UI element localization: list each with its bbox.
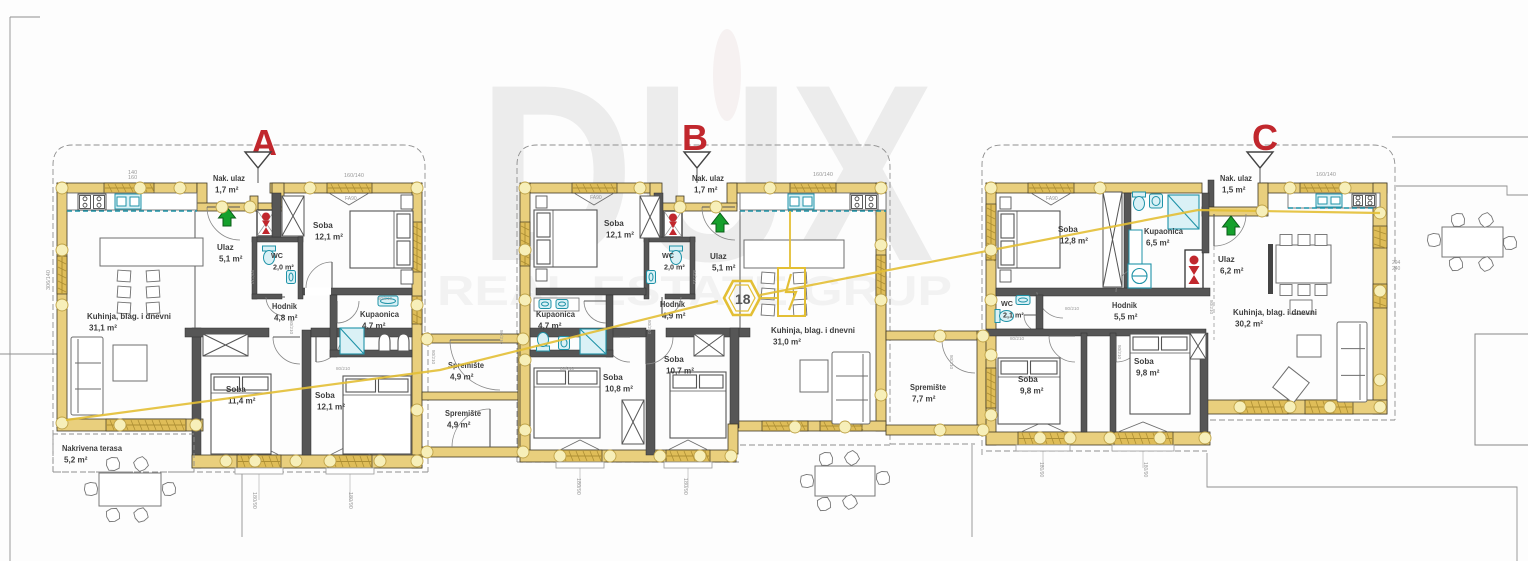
svg-text:160/140: 160/140 bbox=[813, 172, 833, 178]
svg-text:FA90: FA90 bbox=[345, 196, 357, 202]
svg-text:Soba: Soba bbox=[1134, 357, 1154, 366]
svg-text:Nak. ulaz: Nak. ulaz bbox=[1220, 174, 1252, 183]
svg-text:Nakrivena terasa: Nakrivena terasa bbox=[62, 444, 122, 453]
svg-text:1,7 m²: 1,7 m² bbox=[694, 186, 718, 195]
svg-text:80/210: 80/210 bbox=[692, 270, 697, 284]
svg-text:Soba: Soba bbox=[1018, 375, 1038, 384]
svg-text:180/90: 180/90 bbox=[682, 478, 688, 495]
svg-text:Kuhinja, blag. i dnevni: Kuhinja, blag. i dnevni bbox=[1233, 308, 1317, 317]
svg-text:1,5 m²: 1,5 m² bbox=[1222, 186, 1246, 195]
svg-text:1,7 m²: 1,7 m² bbox=[215, 186, 239, 195]
svg-text:2,0 m²: 2,0 m² bbox=[664, 263, 685, 272]
svg-text:4,7 m²: 4,7 m² bbox=[362, 322, 386, 331]
svg-text:5,2 m²: 5,2 m² bbox=[64, 456, 88, 465]
svg-text:80/210: 80/210 bbox=[560, 366, 574, 371]
svg-text:WC: WC bbox=[1001, 299, 1013, 308]
svg-text:12,8 m²: 12,8 m² bbox=[1060, 237, 1088, 246]
svg-text:5,5 m²: 5,5 m² bbox=[1114, 313, 1138, 322]
svg-text:4,7 m²: 4,7 m² bbox=[538, 322, 562, 331]
svg-text:Kupaonica: Kupaonica bbox=[1144, 227, 1183, 236]
svg-text:80/210: 80/210 bbox=[1065, 306, 1079, 311]
svg-text:306/140: 306/140 bbox=[46, 270, 52, 290]
svg-text:Kupaonica: Kupaonica bbox=[536, 310, 575, 319]
svg-text:Nak. ulaz: Nak. ulaz bbox=[213, 174, 245, 183]
svg-text:30,2 m²: 30,2 m² bbox=[1235, 320, 1263, 329]
svg-text:12,1 m²: 12,1 m² bbox=[606, 231, 634, 240]
svg-text:Hodnik: Hodnik bbox=[660, 300, 685, 309]
svg-text:80/210: 80/210 bbox=[250, 270, 255, 284]
svg-text:6,5 m²: 6,5 m² bbox=[1146, 239, 1170, 248]
svg-text:80/210: 80/210 bbox=[431, 350, 436, 364]
svg-text:Spremište: Spremište bbox=[448, 361, 484, 370]
svg-text:Kuhinja, blag. i dnevni: Kuhinja, blag. i dnevni bbox=[87, 312, 171, 321]
svg-text:Ulaz: Ulaz bbox=[1218, 255, 1235, 264]
svg-text:2,1 m²: 2,1 m² bbox=[1003, 311, 1024, 320]
svg-text:80/210: 80/210 bbox=[1117, 345, 1122, 359]
svg-text:31,0 m²: 31,0 m² bbox=[773, 338, 801, 347]
svg-text:160/140: 160/140 bbox=[344, 173, 364, 179]
svg-text:Soba: Soba bbox=[313, 221, 333, 230]
svg-text:Hodnik: Hodnik bbox=[272, 302, 297, 311]
svg-text:Soba: Soba bbox=[1058, 225, 1078, 234]
svg-text:WC: WC bbox=[271, 251, 283, 260]
svg-text:240: 240 bbox=[1392, 266, 1401, 272]
svg-text:80/210: 80/210 bbox=[289, 320, 294, 334]
svg-text:31,1 m²: 31,1 m² bbox=[89, 324, 117, 333]
svg-text:80/210: 80/210 bbox=[378, 296, 392, 301]
svg-text:10,8 m²: 10,8 m² bbox=[605, 385, 633, 394]
svg-text:80/210: 80/210 bbox=[949, 355, 954, 369]
svg-text:9,8 m²: 9,8 m² bbox=[1020, 387, 1044, 396]
svg-text:5,1 m²: 5,1 m² bbox=[219, 255, 243, 264]
svg-text:12,1 m²: 12,1 m² bbox=[315, 233, 343, 242]
svg-text:2,0 m²: 2,0 m² bbox=[273, 263, 294, 272]
svg-text:10,7 m²: 10,7 m² bbox=[666, 367, 694, 376]
svg-text:80/210: 80/210 bbox=[647, 320, 652, 334]
svg-text:Spremište: Spremište bbox=[910, 383, 946, 392]
svg-text:WC: WC bbox=[662, 251, 674, 260]
svg-text:140: 140 bbox=[128, 170, 137, 176]
svg-text:7,7 m²: 7,7 m² bbox=[912, 395, 936, 404]
svg-text:80/210: 80/210 bbox=[499, 330, 504, 344]
svg-text:Ulaz: Ulaz bbox=[217, 243, 234, 252]
svg-text:18: 18 bbox=[735, 291, 751, 307]
svg-text:Hodnik: Hodnik bbox=[1112, 301, 1137, 310]
svg-text:Nak. ulaz: Nak. ulaz bbox=[692, 174, 724, 183]
svg-text:Soba: Soba bbox=[226, 385, 246, 394]
svg-text:Soba: Soba bbox=[315, 391, 335, 400]
svg-text:180/90: 180/90 bbox=[251, 492, 257, 509]
svg-text:Ulaz: Ulaz bbox=[710, 252, 727, 261]
svg-text:Soba: Soba bbox=[664, 355, 684, 364]
svg-text:5,1 m²: 5,1 m² bbox=[712, 264, 736, 273]
svg-text:Soba: Soba bbox=[603, 373, 623, 382]
svg-text:FA90: FA90 bbox=[1046, 196, 1058, 202]
svg-text:9,8 m²: 9,8 m² bbox=[1136, 369, 1160, 378]
svg-text:Kuhinja, blag. i dnevni: Kuhinja, blag. i dnevni bbox=[771, 326, 855, 335]
svg-text:12,1 m²: 12,1 m² bbox=[317, 403, 345, 412]
svg-text:160/140: 160/140 bbox=[1316, 172, 1336, 178]
svg-text:6,2 m²: 6,2 m² bbox=[1220, 267, 1244, 276]
svg-text:Soba: Soba bbox=[604, 219, 624, 228]
svg-text:FA90: FA90 bbox=[590, 195, 602, 201]
svg-text:80/210: 80/210 bbox=[1010, 336, 1024, 341]
svg-text:Spremište: Spremište bbox=[445, 409, 481, 418]
svg-text:80/210: 80/210 bbox=[1209, 300, 1214, 314]
svg-text:Kupaonica: Kupaonica bbox=[360, 310, 399, 319]
svg-text:80/210: 80/210 bbox=[336, 366, 350, 371]
